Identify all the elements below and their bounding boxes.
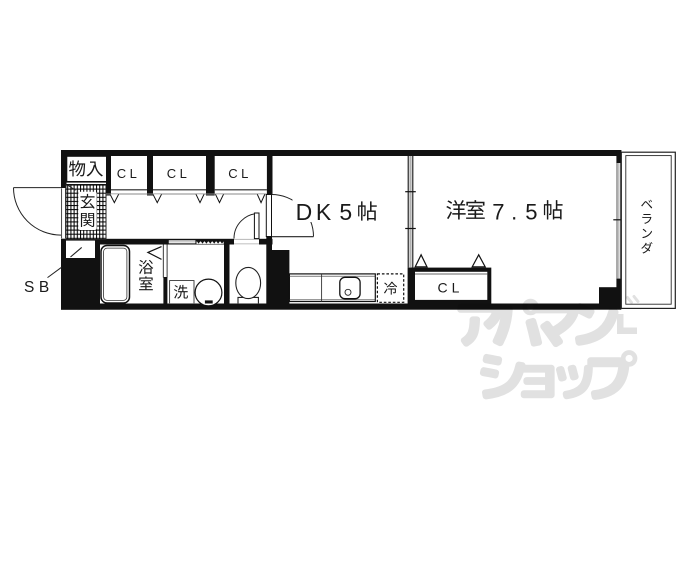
svg-text:.: . [511, 200, 517, 225]
svg-text:CL: CL [117, 166, 141, 181]
svg-text:D: D [296, 199, 313, 225]
svg-text:SB: SB [24, 279, 54, 296]
svg-text:CL: CL [228, 166, 252, 181]
svg-text:CL: CL [438, 280, 464, 296]
svg-text:K: K [316, 199, 332, 225]
svg-text:5: 5 [339, 199, 352, 225]
svg-text:CL: CL [167, 166, 191, 181]
svg-text:5: 5 [525, 200, 537, 225]
svg-text:7: 7 [492, 200, 504, 225]
